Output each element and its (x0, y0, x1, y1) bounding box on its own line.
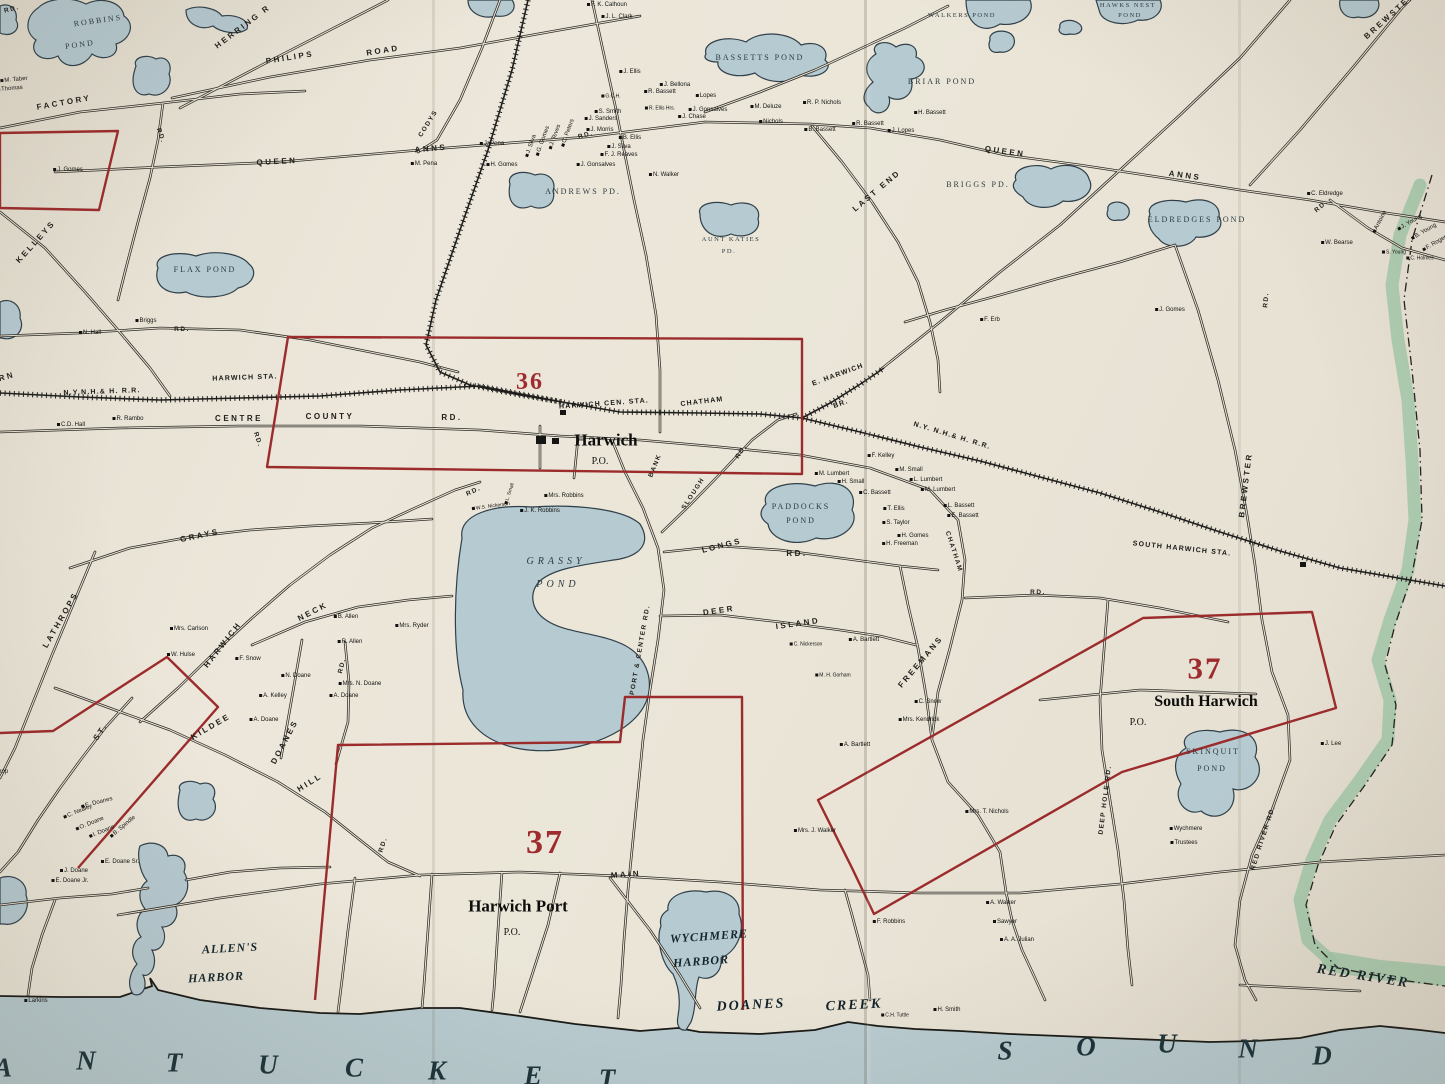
district-boundary-lowerleft (0, 657, 218, 868)
district-box-36 (267, 337, 802, 474)
station-markers (536, 410, 1306, 567)
town-boundary-line (1306, 175, 1445, 986)
road-network (0, 0, 1445, 1018)
road-centerlines (0, 0, 1445, 1018)
map-artwork (0, 0, 1445, 1084)
sound-water (0, 978, 1445, 1084)
map-canvas: RD.HERRING RPHILIPSROADFACTORYRD.QUEENAN… (0, 0, 1445, 1084)
